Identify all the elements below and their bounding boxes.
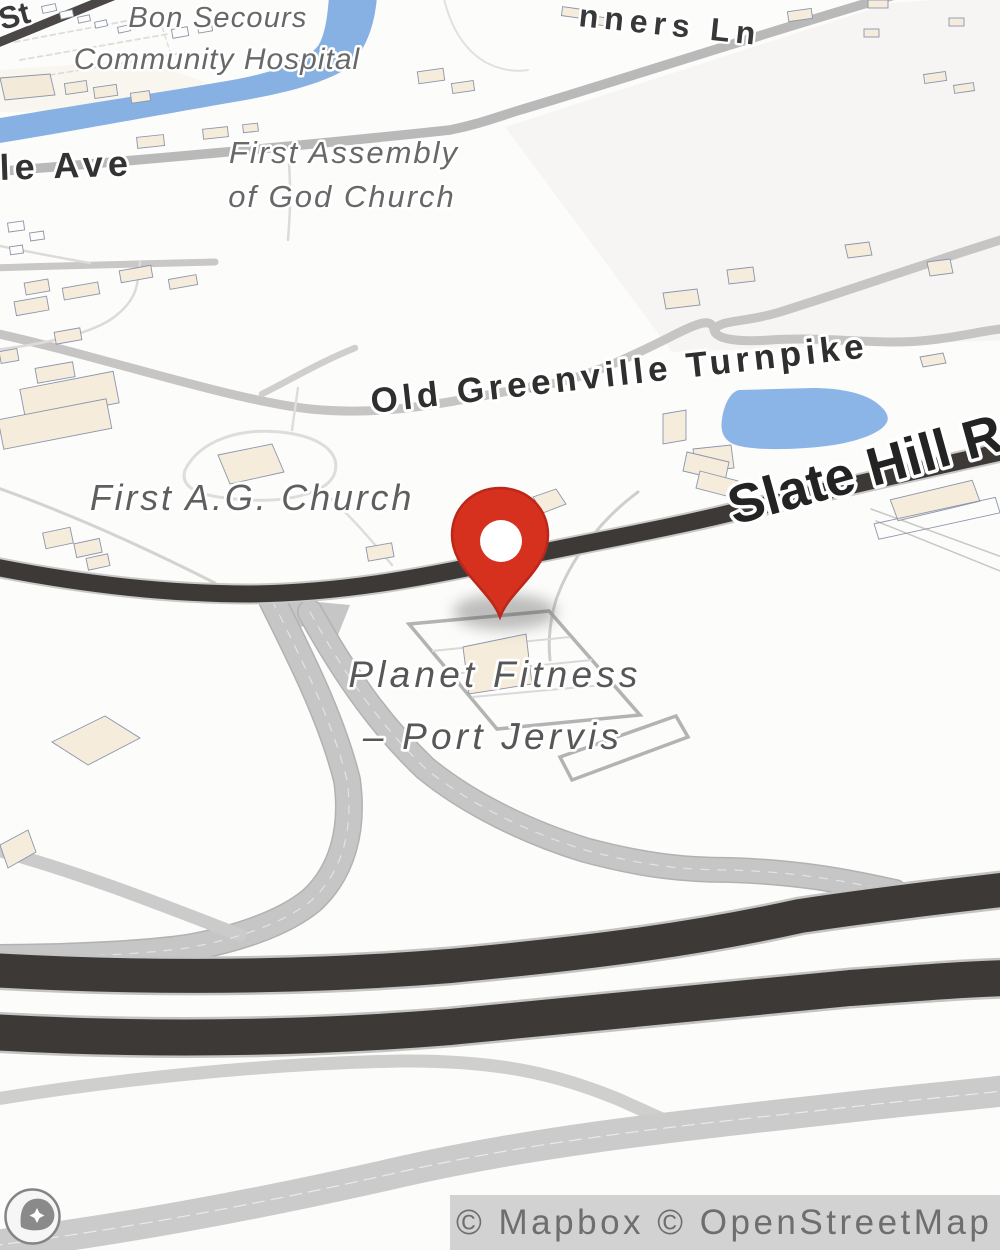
svg-text:Bon Secours: Bon Secours [128, 2, 307, 34]
svg-text:First Assembly: First Assembly [229, 135, 460, 170]
svg-text:– Port Jervis: – Port Jervis [362, 716, 623, 757]
svg-text:First A.G. Church: First A.G. Church [90, 477, 414, 518]
svg-text:Community Hospital: Community Hospital [74, 43, 361, 76]
svg-text:© Mapbox © OpenStreetMap: © Mapbox © OpenStreetMap [456, 1203, 992, 1242]
svg-text:of God Church: of God Church [228, 179, 456, 214]
svg-text:nners Ln: nners Ln [577, 0, 763, 52]
svg-text:Planet Fitness: Planet Fitness [348, 654, 641, 695]
svg-text:le Ave: le Ave [0, 142, 134, 188]
